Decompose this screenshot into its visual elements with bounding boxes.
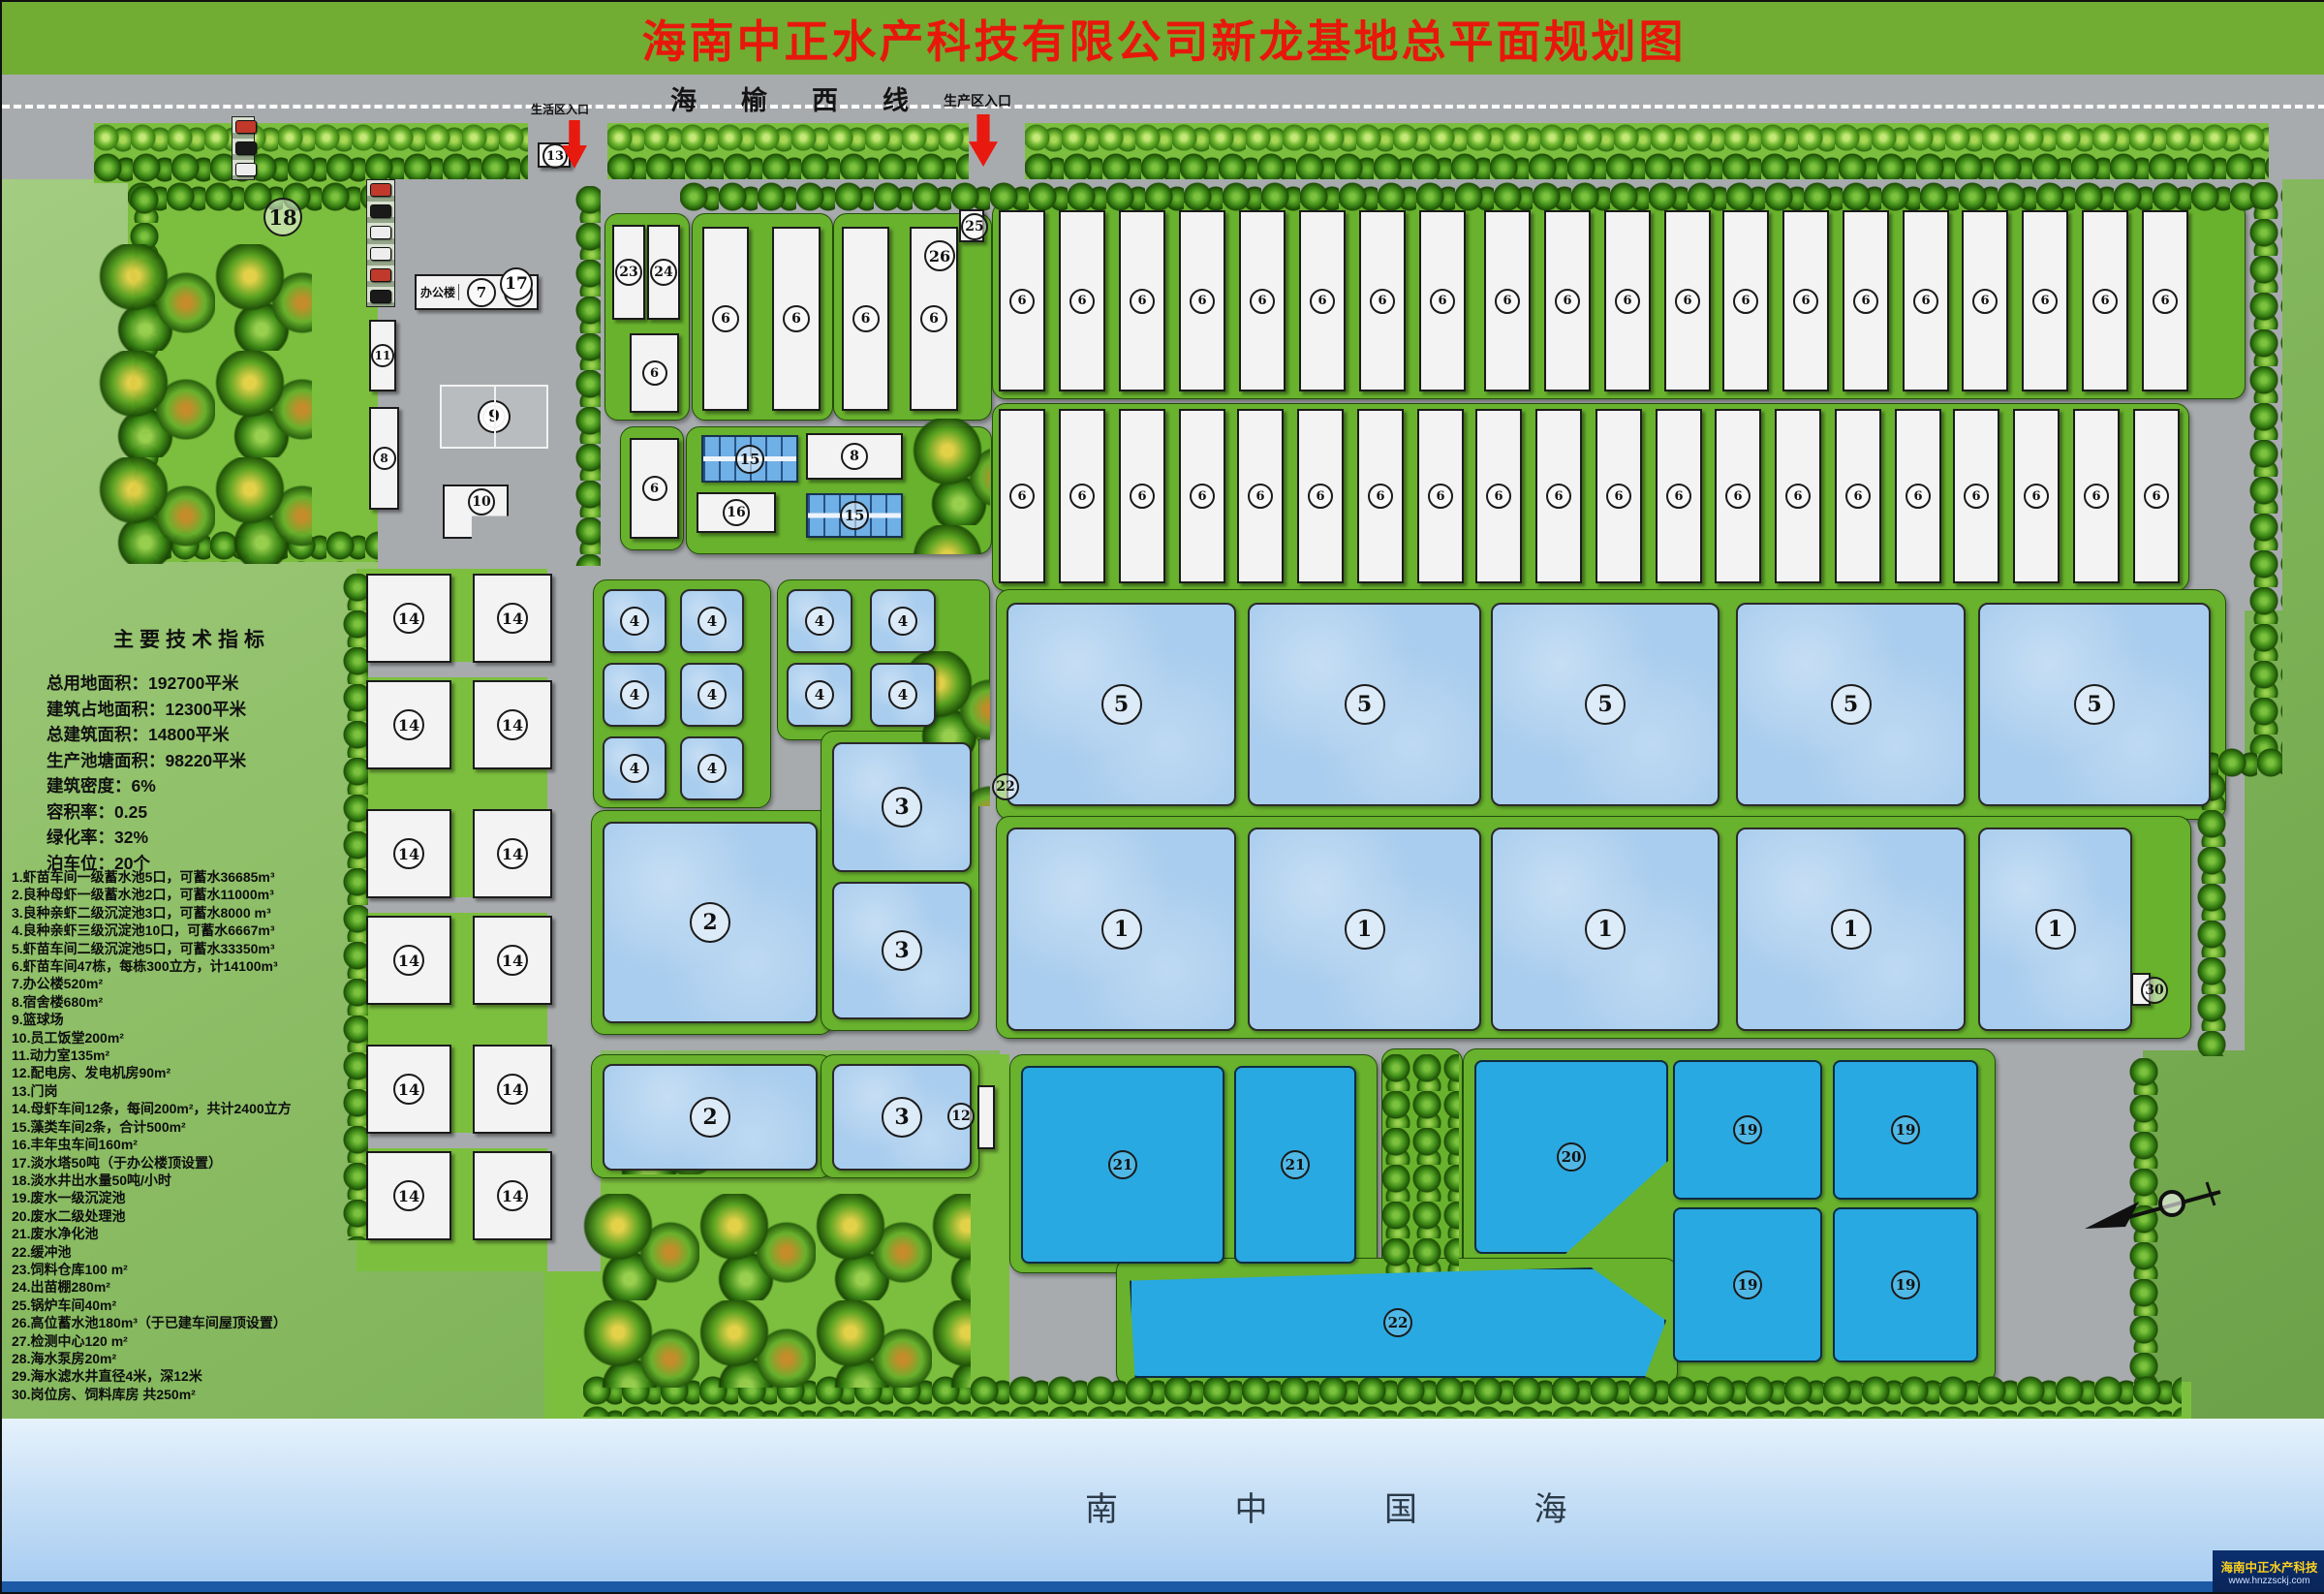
marker-14: 14 <box>497 945 528 976</box>
marker-6: 6 <box>642 476 667 501</box>
building-6: 6 <box>772 227 821 411</box>
car-icon <box>370 204 391 218</box>
marker-3: 3 <box>882 787 922 828</box>
indicator-line: 建筑占地面积：12300平米 <box>46 697 356 723</box>
car-icon <box>235 120 257 134</box>
entrance-label-production: 生产区入口 <box>944 91 1011 110</box>
legend-item: 9.篮球场 <box>12 1011 360 1028</box>
building-6: 6 <box>1596 409 1642 583</box>
algae-shed-15: 15 <box>806 493 903 538</box>
marker-4: 4 <box>697 607 727 636</box>
building-11: 11 <box>369 320 396 391</box>
building-14: 14 <box>366 916 451 1005</box>
legend-item: 17.淡水塔50吨（于办公楼顶设置） <box>12 1154 360 1172</box>
building-6: 6 <box>2022 210 2068 391</box>
pond-5: 5 <box>1736 603 1966 806</box>
pond-1: 1 <box>1978 828 2132 1031</box>
site-plan-canvas: 海南中正水产科技有限公司新龙基地总平面规划图 办公楼72711810923246… <box>0 0 2324 1594</box>
pond-4: 4 <box>680 589 744 653</box>
marker-8: 8 <box>841 443 868 470</box>
parking-strip <box>232 116 255 180</box>
building-6: 6 <box>1359 210 1406 391</box>
marker-14: 14 <box>393 709 424 740</box>
marker-1: 1 <box>2035 909 2076 950</box>
marker-2: 2 <box>690 1097 730 1138</box>
indicator-line: 生产池塘面积：98220平米 <box>46 748 356 774</box>
marker-6: 6 <box>2144 484 2169 509</box>
legend-item: 26.高位蓄水池180m³（于已建车间屋顶设置） <box>12 1314 360 1331</box>
sea-edge-band <box>2 1581 2324 1592</box>
building-14: 14 <box>473 574 552 663</box>
building-6: 6 <box>1604 210 1651 391</box>
pond-4: 4 <box>603 736 666 800</box>
pond-1: 1 <box>1248 828 1481 1031</box>
marker-6: 6 <box>2024 484 2049 509</box>
building-6: 6 <box>1179 409 1225 583</box>
marker-23: 23 <box>615 259 642 286</box>
car-icon <box>370 183 391 197</box>
marker-21: 21 <box>1281 1150 1310 1179</box>
legend-item: 2.良种母虾一级蓄水池2口，可蓄水11000m³ <box>12 886 360 903</box>
legend-item: 13.门岗 <box>12 1082 360 1100</box>
pond-19: 19 <box>1833 1207 1978 1362</box>
legend-item: 18.淡水井出水量50吨/小时 <box>12 1172 360 1189</box>
legend-item: 6.虾苗车间47栋，每栋300立方，计14100m³ <box>12 957 360 975</box>
legend-item: 30.岗位房、饲料库房 共250m² <box>12 1386 360 1403</box>
office-label: 办公楼 <box>420 284 459 300</box>
marker-6: 6 <box>642 360 667 386</box>
marker-15: 15 <box>735 445 764 474</box>
legend-item: 4.良种亲虾三级沉淀池10口，可蓄水6667m³ <box>12 922 360 939</box>
marker-6: 6 <box>1725 484 1751 509</box>
building-6: 6 <box>2073 409 2120 583</box>
marker-22: 22 <box>992 773 1019 800</box>
marker-6: 6 <box>1130 289 1155 314</box>
marker-6: 6 <box>1009 289 1035 314</box>
building-6: 6 <box>1239 210 1286 391</box>
tree-grove <box>583 1194 971 1388</box>
car-icon <box>370 226 391 239</box>
legend-item: 10.员工饭堂200m² <box>12 1029 360 1047</box>
building-6: 6 <box>999 210 1045 391</box>
marker-4: 4 <box>697 754 727 783</box>
pond-21: 21 <box>1021 1066 1224 1264</box>
marker-6: 6 <box>1308 484 1333 509</box>
building-6: 6 <box>1775 409 1821 583</box>
tree-row <box>94 124 530 153</box>
tech-indicators-lines: 总用地面积：192700平米建筑占地面积：12300平米总建筑面积：14800平… <box>46 671 356 876</box>
building-6: 6 <box>1656 409 1702 583</box>
tree-row <box>2249 182 2282 754</box>
marker-10: 10 <box>468 488 495 516</box>
legend-item: 29.海水滤水井直径4米，深12米 <box>12 1367 360 1385</box>
building-6: 6 <box>1535 409 1582 583</box>
legend-item: 12.配电房、发电机房90m² <box>12 1064 360 1081</box>
marker-4: 4 <box>805 680 834 709</box>
marker-5: 5 <box>1585 684 1626 725</box>
pond-19: 19 <box>1673 1207 1822 1362</box>
marker-14: 14 <box>393 945 424 976</box>
marker-14: 14 <box>393 838 424 869</box>
marker-12: 12 <box>947 1103 975 1130</box>
building-6: 6 <box>1722 210 1769 391</box>
pond-5: 5 <box>1978 603 2211 806</box>
tech-indicators-panel: 主要技术指标 总用地面积：192700平米建筑占地面积：12300平米总建筑面积… <box>46 624 356 876</box>
legend-item: 3.良种亲虾二级沉淀池3口，可蓄水8000 m³ <box>12 904 360 922</box>
marker-20: 20 <box>1557 1142 1586 1172</box>
marker-11: 11 <box>371 344 394 367</box>
pond-5: 5 <box>1007 603 1236 806</box>
marker-6: 6 <box>1430 289 1455 314</box>
pond-3: 3 <box>832 742 972 872</box>
legend-item: 7.办公楼520m² <box>12 975 360 992</box>
marker-3: 3 <box>882 930 922 971</box>
legend-item: 11.动力室135m² <box>12 1047 360 1064</box>
tree-row <box>680 182 2269 211</box>
algae-shed-15: 15 <box>701 435 798 483</box>
pond-19: 19 <box>1673 1060 1822 1200</box>
marker-6: 6 <box>1130 484 1155 509</box>
marker-30: 30 <box>2141 977 2168 1004</box>
building-6: 6 <box>1299 210 1346 391</box>
pond-2: 2 <box>603 822 818 1023</box>
marker-7: 7 <box>467 278 496 307</box>
marker-16: 16 <box>723 499 750 526</box>
marker-4: 4 <box>620 754 649 783</box>
legend-item: 19.废水一级沉淀池 <box>12 1189 360 1206</box>
pond-4: 4 <box>680 736 744 800</box>
building-14: 14 <box>366 1045 451 1134</box>
car-icon <box>370 268 391 282</box>
marker-6: 6 <box>1310 289 1335 314</box>
marker-17: 17 <box>500 267 533 300</box>
building-14: 14 <box>366 1151 451 1240</box>
tree-row <box>575 186 601 566</box>
marker-6: 6 <box>1495 289 1520 314</box>
road-centerline <box>2 105 2324 109</box>
legend-item: 27.检测中心120 m² <box>12 1332 360 1350</box>
marker-6: 6 <box>2092 289 2118 314</box>
car-icon <box>235 141 257 155</box>
building-6: 6 <box>842 227 889 411</box>
legend-item: 23.饲料仓库100 m² <box>12 1261 360 1278</box>
marker-6: 6 <box>1675 289 1700 314</box>
marker-4: 4 <box>620 607 649 636</box>
building-6: 6 <box>2133 409 2180 583</box>
building-14: 14 <box>366 680 451 769</box>
road <box>356 1133 552 1148</box>
legend-item: 1.虾苗车间一级蓄水池5口，可蓄水36685m³ <box>12 868 360 886</box>
marker-6: 6 <box>1370 289 1395 314</box>
legend-item: 21.废水净化池 <box>12 1225 360 1242</box>
building-6: 6 <box>1715 409 1761 583</box>
building-6: 6 <box>2142 210 2188 391</box>
marker-5: 5 <box>1831 684 1872 725</box>
marker-5: 5 <box>1345 684 1385 725</box>
building-6: 6 <box>1297 409 1344 583</box>
marker-6: 6 <box>1069 289 1095 314</box>
marker-15: 15 <box>840 501 869 530</box>
building-6: 6 <box>1357 409 1404 583</box>
building-14: 14 <box>366 574 451 663</box>
marker-25: 25 <box>961 213 988 240</box>
pond-1: 1 <box>1007 828 1236 1031</box>
pond-5: 5 <box>1248 603 1481 806</box>
building-14: 14 <box>473 1045 552 1134</box>
pond-4: 4 <box>680 663 744 727</box>
road <box>356 662 552 677</box>
marker-6: 6 <box>2032 289 2058 314</box>
legend-item: 22.缓冲池 <box>12 1243 360 1261</box>
marker-14: 14 <box>497 838 528 869</box>
marker-4: 4 <box>888 607 917 636</box>
legend-item: 5.虾苗车间二级沉淀池5口，可蓄水33350m³ <box>12 940 360 957</box>
marker-6: 6 <box>1428 484 1453 509</box>
tech-indicators-heading: 主要技术指标 <box>46 624 337 653</box>
legend-item: 28.海水泵房20m² <box>12 1350 360 1367</box>
marker-5: 5 <box>1101 684 1142 725</box>
marker-8: 8 <box>373 447 396 470</box>
building-6: 6 <box>1835 409 1881 583</box>
watermark-company: 海南中正水产科技 <box>2220 1557 2317 1576</box>
highway-name: 海榆西线 <box>670 79 953 117</box>
marker-18: 18 <box>263 198 302 236</box>
pond-4: 4 <box>870 663 936 727</box>
legend-item: 25.锅炉车间40m² <box>12 1297 360 1314</box>
marker-14: 14 <box>497 1180 528 1211</box>
building-6: 6 <box>1419 210 1466 391</box>
building-6: 6 <box>630 438 679 539</box>
marker-6: 6 <box>783 305 810 332</box>
tree-row <box>128 182 380 211</box>
marker-6: 6 <box>852 305 880 332</box>
marker-24: 24 <box>650 259 677 286</box>
building-6: 6 <box>1119 210 1165 391</box>
sea-name: 南 中 国 海 <box>1085 1483 1622 1530</box>
marker-6: 6 <box>1906 484 1931 509</box>
building-6: 6 <box>1237 409 1284 583</box>
building-6: 6 <box>1475 409 1522 583</box>
marker-14: 14 <box>497 1074 528 1105</box>
marker-1: 1 <box>1831 909 1872 950</box>
building-6: 6 <box>1059 210 1105 391</box>
tree-grove <box>99 244 312 564</box>
marker-14: 14 <box>497 603 528 634</box>
marker-6: 6 <box>1248 484 1273 509</box>
small-building <box>977 1085 995 1149</box>
marker-6: 6 <box>920 305 947 332</box>
marker-6: 6 <box>1009 484 1035 509</box>
building-14: 14 <box>366 809 451 898</box>
marker-6: 6 <box>1486 484 1511 509</box>
building-6: 6 <box>1179 210 1225 391</box>
building-6: 6 <box>1484 210 1531 391</box>
marker-4: 4 <box>805 607 834 636</box>
marker-14: 14 <box>393 603 424 634</box>
marker-1: 1 <box>1585 909 1626 950</box>
basketball-court: 9 <box>440 385 548 449</box>
building-6: 6 <box>1059 409 1105 583</box>
building-6: 6 <box>1417 409 1464 583</box>
building-6: 6 <box>1953 409 1999 583</box>
pond-4: 4 <box>603 589 666 653</box>
marker-14: 14 <box>393 1074 424 1105</box>
building-24: 24 <box>647 225 680 320</box>
pond-1: 1 <box>1736 828 1966 1031</box>
legend-item: 20.废水二级处理池 <box>12 1207 360 1225</box>
pond-4: 4 <box>787 663 852 727</box>
marker-3: 3 <box>882 1097 922 1138</box>
marker-21: 21 <box>1108 1150 1137 1179</box>
tree-row <box>1025 124 2269 153</box>
green-pad <box>992 403 2189 591</box>
car-icon <box>370 290 391 303</box>
watermark-site: www.hnzzsckj.com <box>2229 1576 2310 1586</box>
watermark: 海南中正水产科技 www.hnzzsckj.com <box>2213 1550 2324 1592</box>
marker-6: 6 <box>1853 289 1878 314</box>
pond-1: 1 <box>1491 828 1720 1031</box>
marker-6: 6 <box>1785 484 1811 509</box>
marker-6: 6 <box>1069 484 1095 509</box>
compass-icon <box>2083 1163 2228 1260</box>
marker-9: 9 <box>478 400 511 433</box>
marker-1: 1 <box>1345 909 1385 950</box>
marker-6: 6 <box>1546 484 1571 509</box>
marker-4: 4 <box>697 680 727 709</box>
building-6: 6 <box>2082 210 2128 391</box>
building-14: 14 <box>473 680 552 769</box>
indicator-line: 容积率：0.25 <box>46 799 356 826</box>
marker-26: 26 <box>924 240 955 271</box>
marker-19: 19 <box>1733 1270 1762 1299</box>
marker-6: 6 <box>1913 289 1938 314</box>
marker-2: 2 <box>690 902 730 943</box>
building-6: 6 <box>1903 210 1949 391</box>
pond-21: 21 <box>1234 1066 1356 1264</box>
marker-6: 6 <box>2153 289 2178 314</box>
pond-4: 4 <box>787 589 852 653</box>
pond-4: 4 <box>603 663 666 727</box>
legend-item: 16.丰年虫车间160m² <box>12 1136 360 1153</box>
building-6: 6 <box>1664 210 1711 391</box>
marker-14: 14 <box>497 709 528 740</box>
pond-2: 2 <box>603 1064 818 1171</box>
marker-4: 4 <box>888 680 917 709</box>
building-6: 6 <box>1782 210 1829 391</box>
tree-row <box>607 124 969 153</box>
pond-5: 5 <box>1491 603 1720 806</box>
marker-6: 6 <box>1733 289 1758 314</box>
marker-6: 6 <box>1615 289 1640 314</box>
marker-6: 6 <box>1964 484 1989 509</box>
marker-5: 5 <box>2074 684 2115 725</box>
marker-6: 6 <box>1250 289 1275 314</box>
building-16: 16 <box>697 492 776 533</box>
marker-19: 19 <box>1891 1115 1920 1144</box>
marker-6: 6 <box>1368 484 1393 509</box>
pond-4: 4 <box>870 589 936 653</box>
marker-22: 22 <box>1383 1308 1412 1337</box>
building-6: 6 <box>1895 409 1941 583</box>
marker-6: 6 <box>1972 289 1998 314</box>
marker-14: 14 <box>393 1180 424 1211</box>
marker-6: 6 <box>1666 484 1691 509</box>
marker-6: 6 <box>1606 484 1631 509</box>
marker-6: 6 <box>1190 289 1215 314</box>
indicator-line: 建筑密度：6% <box>46 773 356 799</box>
building-8: 8 <box>369 407 399 510</box>
marker-6: 6 <box>1793 289 1818 314</box>
tree-row <box>2197 773 2226 1056</box>
legend-item: 14.母虾车间12条，每间200m²，共计2400立方 <box>12 1100 360 1117</box>
legend-panel: 1.虾苗车间一级蓄水池5口，可蓄水36685m³2.良种母虾一级蓄水池2口，可蓄… <box>12 868 360 1403</box>
entrance-label-living: 生活区入口 <box>531 101 589 117</box>
building-6: 6 <box>1544 210 1591 391</box>
marker-19: 19 <box>1891 1270 1920 1299</box>
building-6: 6 <box>1119 409 1165 583</box>
building-6: 6 <box>702 227 749 411</box>
building-6: 6 <box>999 409 1045 583</box>
pond-22: 22 <box>1130 1267 1666 1378</box>
car-icon <box>235 163 257 176</box>
marker-1: 1 <box>1101 909 1142 950</box>
building-8: 8 <box>806 433 903 480</box>
indicator-line: 绿化率：32% <box>46 825 356 851</box>
building-6: 6 <box>1843 210 1889 391</box>
legend-item: 24.出苗棚280m² <box>12 1278 360 1296</box>
building-23: 23 <box>612 225 645 320</box>
building-14: 14 <box>473 916 552 1005</box>
marker-6: 6 <box>1555 289 1580 314</box>
marker-6: 6 <box>2084 484 2109 509</box>
road <box>356 897 552 913</box>
marker-19: 19 <box>1733 1115 1762 1144</box>
building-6: 6 <box>630 333 679 413</box>
marker-6: 6 <box>1190 484 1215 509</box>
marker-4: 4 <box>620 680 649 709</box>
building-6: 6 <box>1962 210 2008 391</box>
indicator-line: 总用地面积：192700平米 <box>46 671 356 697</box>
pond-19: 19 <box>1833 1060 1978 1200</box>
building-14: 14 <box>473 809 552 898</box>
parking-strip <box>366 179 395 307</box>
legend-item: 15.藻类车间2条，合计500m² <box>12 1118 360 1136</box>
indicator-line: 总建筑面积：14800平米 <box>46 722 356 748</box>
tree-grove <box>913 419 990 554</box>
pond-3: 3 <box>832 882 972 1019</box>
marker-6: 6 <box>1845 484 1871 509</box>
building-6: 6 <box>2013 409 2060 583</box>
marker-6: 6 <box>712 305 739 332</box>
building-14: 14 <box>473 1151 552 1240</box>
car-icon <box>370 247 391 261</box>
legend-item: 8.宿舍楼680m² <box>12 993 360 1011</box>
